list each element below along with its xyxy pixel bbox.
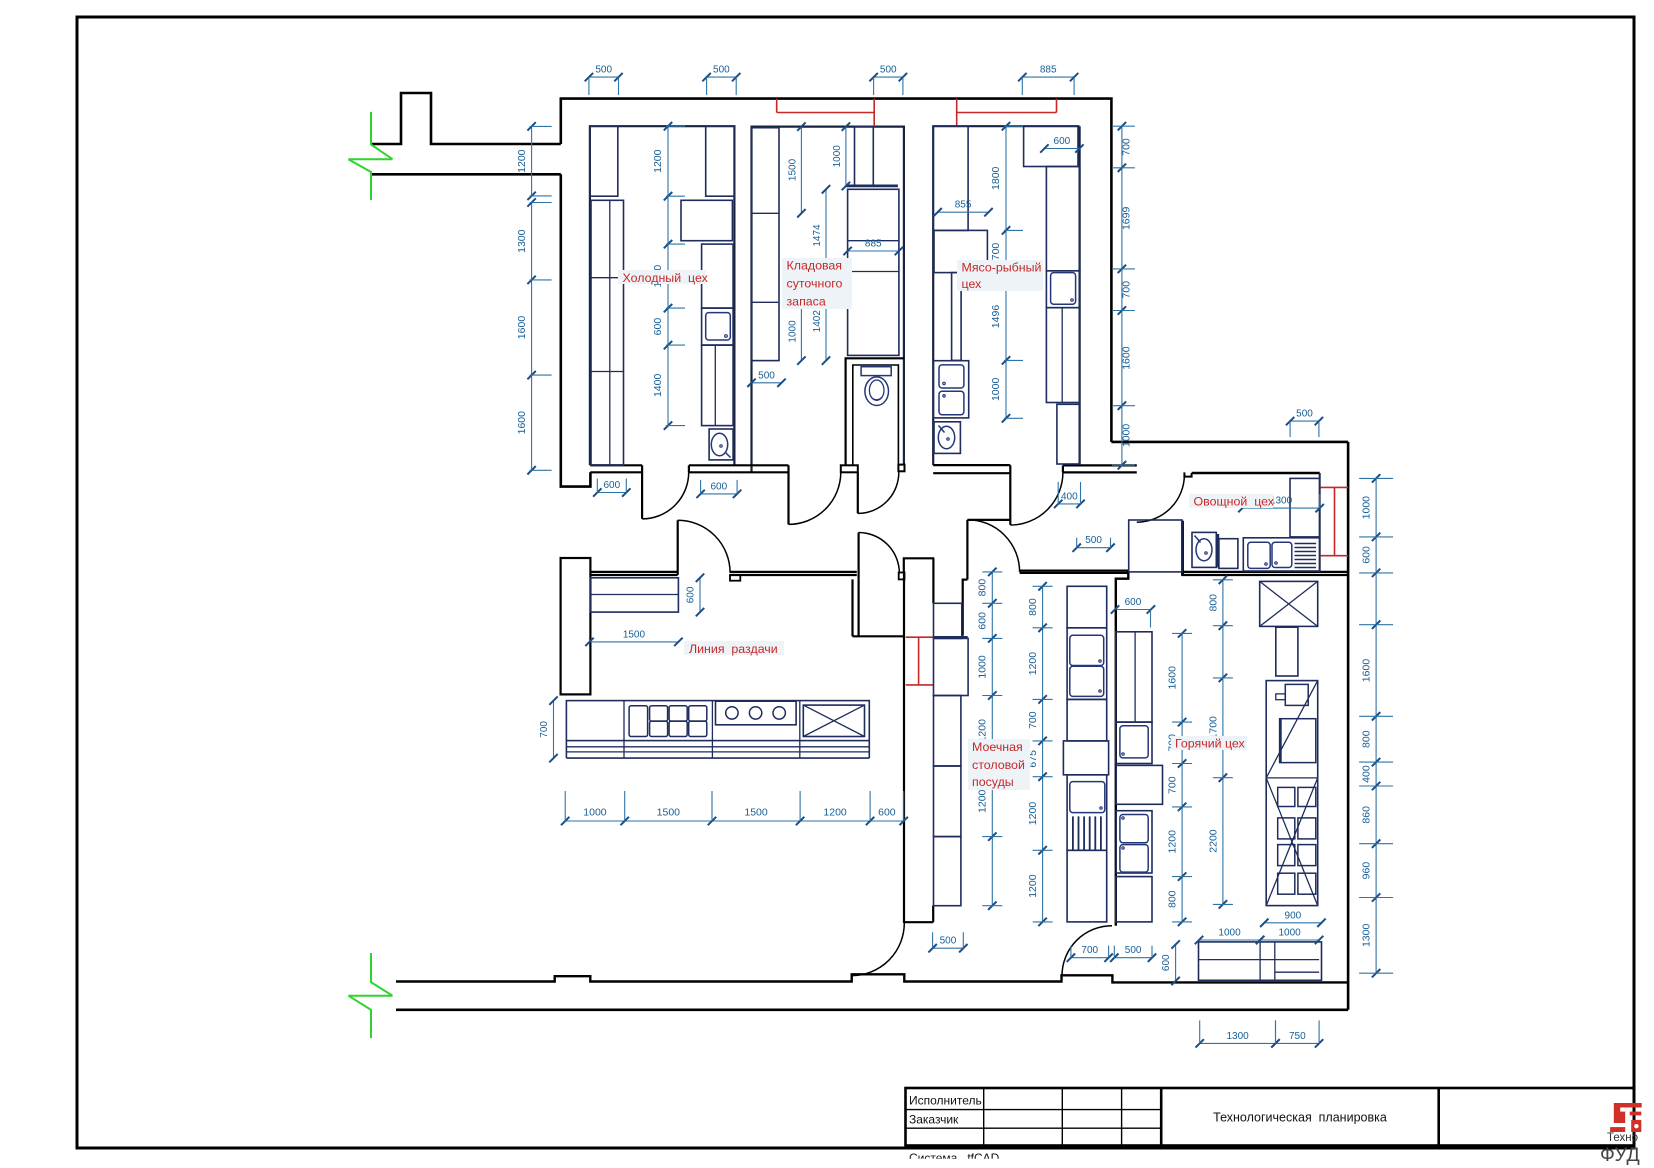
svg-text:цех: цех	[962, 277, 983, 291]
svg-text:1300: 1300	[516, 229, 528, 253]
svg-text:Исполнитель: Исполнитель	[909, 1094, 982, 1108]
svg-text:500: 500	[758, 370, 775, 381]
svg-text:1699: 1699	[1121, 207, 1133, 231]
svg-text:960: 960	[1361, 862, 1373, 880]
svg-text:800: 800	[1167, 890, 1179, 908]
svg-text:1800: 1800	[990, 166, 1002, 190]
svg-text:1000: 1000	[977, 655, 989, 679]
svg-text:Кладовая: Кладовая	[787, 259, 843, 273]
svg-text:1500: 1500	[623, 629, 646, 640]
svg-text:800: 800	[977, 579, 989, 597]
svg-text:Моечная: Моечная	[972, 740, 1023, 754]
svg-text:Холодный цех: Холодный цех	[623, 271, 709, 285]
svg-text:500: 500	[940, 936, 957, 947]
svg-text:1500: 1500	[744, 807, 768, 819]
svg-text:885: 885	[865, 239, 882, 250]
svg-text:885: 885	[1040, 65, 1057, 76]
svg-text:600: 600	[603, 480, 620, 491]
svg-text:1300: 1300	[1361, 924, 1373, 948]
svg-text:1474: 1474	[812, 224, 823, 247]
svg-text:1200: 1200	[1027, 802, 1039, 826]
svg-text:1200: 1200	[516, 149, 528, 173]
svg-text:700: 700	[539, 721, 550, 738]
svg-text:500: 500	[595, 65, 612, 76]
svg-text:600: 600	[878, 807, 896, 819]
svg-text:1300: 1300	[1226, 1031, 1249, 1042]
svg-text:700: 700	[1027, 711, 1039, 729]
svg-text:1600: 1600	[516, 411, 528, 435]
svg-text:900: 900	[1285, 910, 1302, 921]
svg-text:1600: 1600	[1361, 659, 1373, 683]
svg-text:1000: 1000	[1278, 928, 1301, 939]
svg-text:2200: 2200	[1208, 829, 1220, 853]
svg-text:700: 700	[1121, 281, 1133, 299]
svg-text:600: 600	[1161, 954, 1172, 971]
svg-text:запаса: запаса	[787, 295, 826, 309]
svg-text:860: 860	[1361, 806, 1373, 824]
svg-text:1000: 1000	[787, 320, 798, 343]
svg-text:1000: 1000	[832, 145, 843, 168]
svg-text:700: 700	[1167, 776, 1179, 794]
svg-text:1400: 1400	[652, 374, 664, 398]
svg-text:1200: 1200	[977, 719, 989, 743]
svg-text:1200: 1200	[977, 789, 989, 813]
svg-text:700: 700	[990, 243, 1002, 261]
svg-text:600: 600	[652, 318, 664, 336]
svg-text:500: 500	[1296, 409, 1313, 420]
svg-text:400: 400	[1361, 765, 1373, 783]
svg-text:700: 700	[1121, 138, 1133, 156]
svg-text:800: 800	[1027, 598, 1039, 616]
svg-text:1000: 1000	[1218, 928, 1241, 939]
svg-text:600: 600	[686, 586, 697, 603]
svg-text:1200: 1200	[1027, 652, 1039, 676]
svg-text:ФУД: ФУД	[1600, 1144, 1640, 1166]
svg-text:800: 800	[1208, 594, 1220, 612]
svg-text:500: 500	[1085, 535, 1102, 546]
svg-text:1000: 1000	[1121, 424, 1133, 448]
svg-text:1200: 1200	[823, 807, 847, 819]
svg-text:1496: 1496	[990, 305, 1002, 329]
svg-text:600: 600	[977, 612, 989, 630]
svg-text:750: 750	[1289, 1031, 1306, 1042]
svg-text:1000: 1000	[1361, 496, 1373, 520]
svg-text:суточного: суточного	[787, 277, 843, 291]
svg-text:Техно: Техно	[1607, 1132, 1638, 1144]
svg-text:500: 500	[880, 65, 897, 76]
svg-text:1600: 1600	[1121, 346, 1133, 370]
svg-text:посуды: посуды	[972, 775, 1014, 789]
svg-text:1500: 1500	[787, 158, 798, 181]
svg-text:1200: 1200	[1027, 874, 1039, 898]
svg-text:1000: 1000	[583, 807, 607, 819]
svg-text:Горячий цех: Горячий цех	[1175, 737, 1246, 751]
svg-text:500: 500	[1125, 945, 1142, 956]
svg-text:600: 600	[1125, 597, 1142, 608]
svg-text:1000: 1000	[990, 378, 1002, 402]
svg-text:Линия раздачи: Линия раздачи	[689, 642, 778, 656]
svg-text:700: 700	[1081, 945, 1098, 956]
svg-text:600: 600	[711, 481, 728, 492]
svg-text:600: 600	[1361, 546, 1373, 564]
svg-text:1500: 1500	[657, 807, 681, 819]
svg-text:Технологическая планировка: Технологическая планировка	[1213, 1111, 1387, 1125]
svg-text:Мясо-рыбный: Мясо-рыбный	[962, 261, 1042, 275]
svg-text:1600: 1600	[1167, 666, 1179, 690]
svg-text:1200: 1200	[1167, 830, 1179, 854]
svg-text:855: 855	[955, 200, 972, 211]
svg-text:Овощной цех: Овощной цех	[1194, 495, 1275, 509]
svg-text:500: 500	[713, 65, 730, 76]
svg-text:столовой: столовой	[972, 758, 1025, 772]
svg-text:600: 600	[1054, 136, 1071, 147]
svg-text:400: 400	[1061, 491, 1078, 502]
svg-text:1600: 1600	[516, 316, 528, 340]
svg-text:1402: 1402	[812, 310, 823, 333]
svg-text:1200: 1200	[652, 149, 664, 173]
svg-text:800: 800	[1361, 730, 1373, 748]
svg-text:Заказчик: Заказчик	[909, 1113, 959, 1127]
